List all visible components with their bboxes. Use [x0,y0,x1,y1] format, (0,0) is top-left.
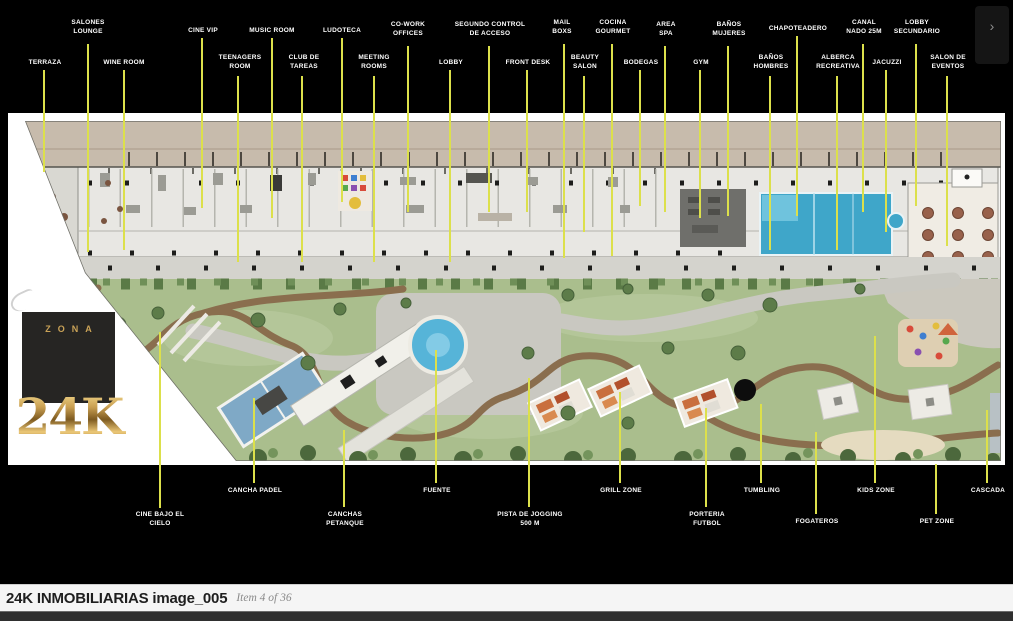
plan-label: SALON DE EVENTOS [922,53,974,72]
plan-label: SALONES LOUNGE [64,18,112,37]
leader-line [341,38,344,202]
plan-label: TUMBLING [720,486,804,495]
plan-label: CLUB DE TAREAS [282,53,326,72]
plan-label: SEGUNDO CONTROL DE ACCESO [454,20,526,39]
leader-line [488,46,491,212]
events-hall [908,169,998,267]
leader-line [526,70,529,212]
sand-area [821,430,945,460]
leader-line [699,70,702,218]
plan-label: WINE ROOM [82,58,166,67]
leader-line [87,44,90,252]
arcade-walkway [8,257,1005,279]
plan-label: PET ZONE [895,517,979,526]
leader-line [201,38,204,208]
plan-label: JACUZZI [845,58,929,67]
cascada-feature [990,393,1002,453]
site-plan-graphic [8,113,1005,465]
plan-label: KIDS ZONE [834,486,918,495]
leader-line [664,46,667,212]
plan-label: CANCHA PADEL [213,486,297,495]
footer-title: 24K INMOBILIARIAS image_005 [6,590,227,607]
plan-label: PISTA DE JOGGING 500 M [495,510,565,529]
footer-item-counter: Item 4 of 36 [236,592,291,604]
leader-line [449,70,452,262]
next-image-button[interactable]: › [975,6,1009,64]
plan-label: CO-WORK OFFICES [384,20,432,39]
leader-line [583,76,586,232]
leader-line [435,350,438,483]
plan-label: TERRAZA [3,58,87,67]
plan-label: FOGATEROS [775,517,859,526]
pet-zone-pad [908,384,952,419]
leader-line [343,430,346,507]
leader-line [639,70,642,206]
leader-line [769,76,772,250]
indoor-pool [760,193,892,255]
plan-label: FRONT DESK [486,58,570,67]
kids-playground [898,319,958,367]
plan-label: MEETING ROOMS [352,53,396,72]
plan-label: FUENTE [395,486,479,495]
leader-line [915,44,918,206]
plan-label: LOBBY SECUNDARIO [887,18,947,37]
leader-line [874,336,877,483]
plan-label: LUDOTECA [300,26,384,35]
plan-label: MAIL BOXS [547,18,577,37]
logo-24k-text: 24K [10,392,128,442]
plan-label: TEENAGERS ROOM [215,53,265,72]
leader-line [237,76,240,262]
leader-line [253,398,256,483]
plan-label: PORTERIA FUTBOL [682,510,732,529]
leader-line [619,392,622,483]
leader-line [815,432,818,514]
leader-line [935,464,938,514]
leader-line [705,408,708,507]
leader-line [271,38,274,218]
plan-label: GYM [659,58,743,67]
plan-label: CINE BAJO EL CIELO [130,510,190,529]
leader-line [986,410,989,483]
leader-line [563,44,566,258]
tumbling-circle [734,379,756,401]
chevron-right-icon: › [990,18,995,34]
leader-line [373,76,376,262]
site-plan-image[interactable] [8,113,1005,465]
gym-room [680,189,746,247]
leader-line [611,44,614,256]
leader-line [836,76,839,250]
image-viewer: { "colors": { "leader": "#dce04b", "gold… [0,0,1013,620]
leader-line [43,70,46,172]
plan-label: CHAPOTEADERO [756,24,840,33]
leader-line [301,76,304,262]
plan-label: CANCHAS PETANQUE [317,510,373,529]
plan-label: CANAL NADO 25M [846,18,882,37]
plan-label: COCINA GOURMET [590,18,636,37]
fountain [410,317,466,373]
leader-line [760,404,763,483]
leader-line [885,70,888,232]
plan-label: LOBBY [409,58,493,67]
footer-bar: 24K INMOBILIARIAS image_005 Item 4 of 36 [0,584,1013,611]
plan-label: BAÑOS HOMBRES [748,53,794,72]
plan-label: CASCADA [946,486,1013,495]
terrace-area [36,167,78,267]
jacuzzi-pool [888,213,904,229]
plan-label: AREA SPA [651,20,681,39]
parking-band [8,121,1005,167]
plan-label: BAÑOS MUJERES [707,20,751,39]
leader-line [123,70,126,250]
leader-line [528,378,531,507]
amenities-building [8,167,1001,267]
front-desk [478,213,512,221]
leader-line [159,332,162,508]
plan-label: GRILL ZONE [579,486,663,495]
leader-line [407,46,410,212]
garden-grounds [8,279,1005,465]
leader-line [946,76,949,246]
leader-line [796,36,799,216]
logo-zona-text: ZONA [38,324,99,334]
leader-line [727,46,730,216]
